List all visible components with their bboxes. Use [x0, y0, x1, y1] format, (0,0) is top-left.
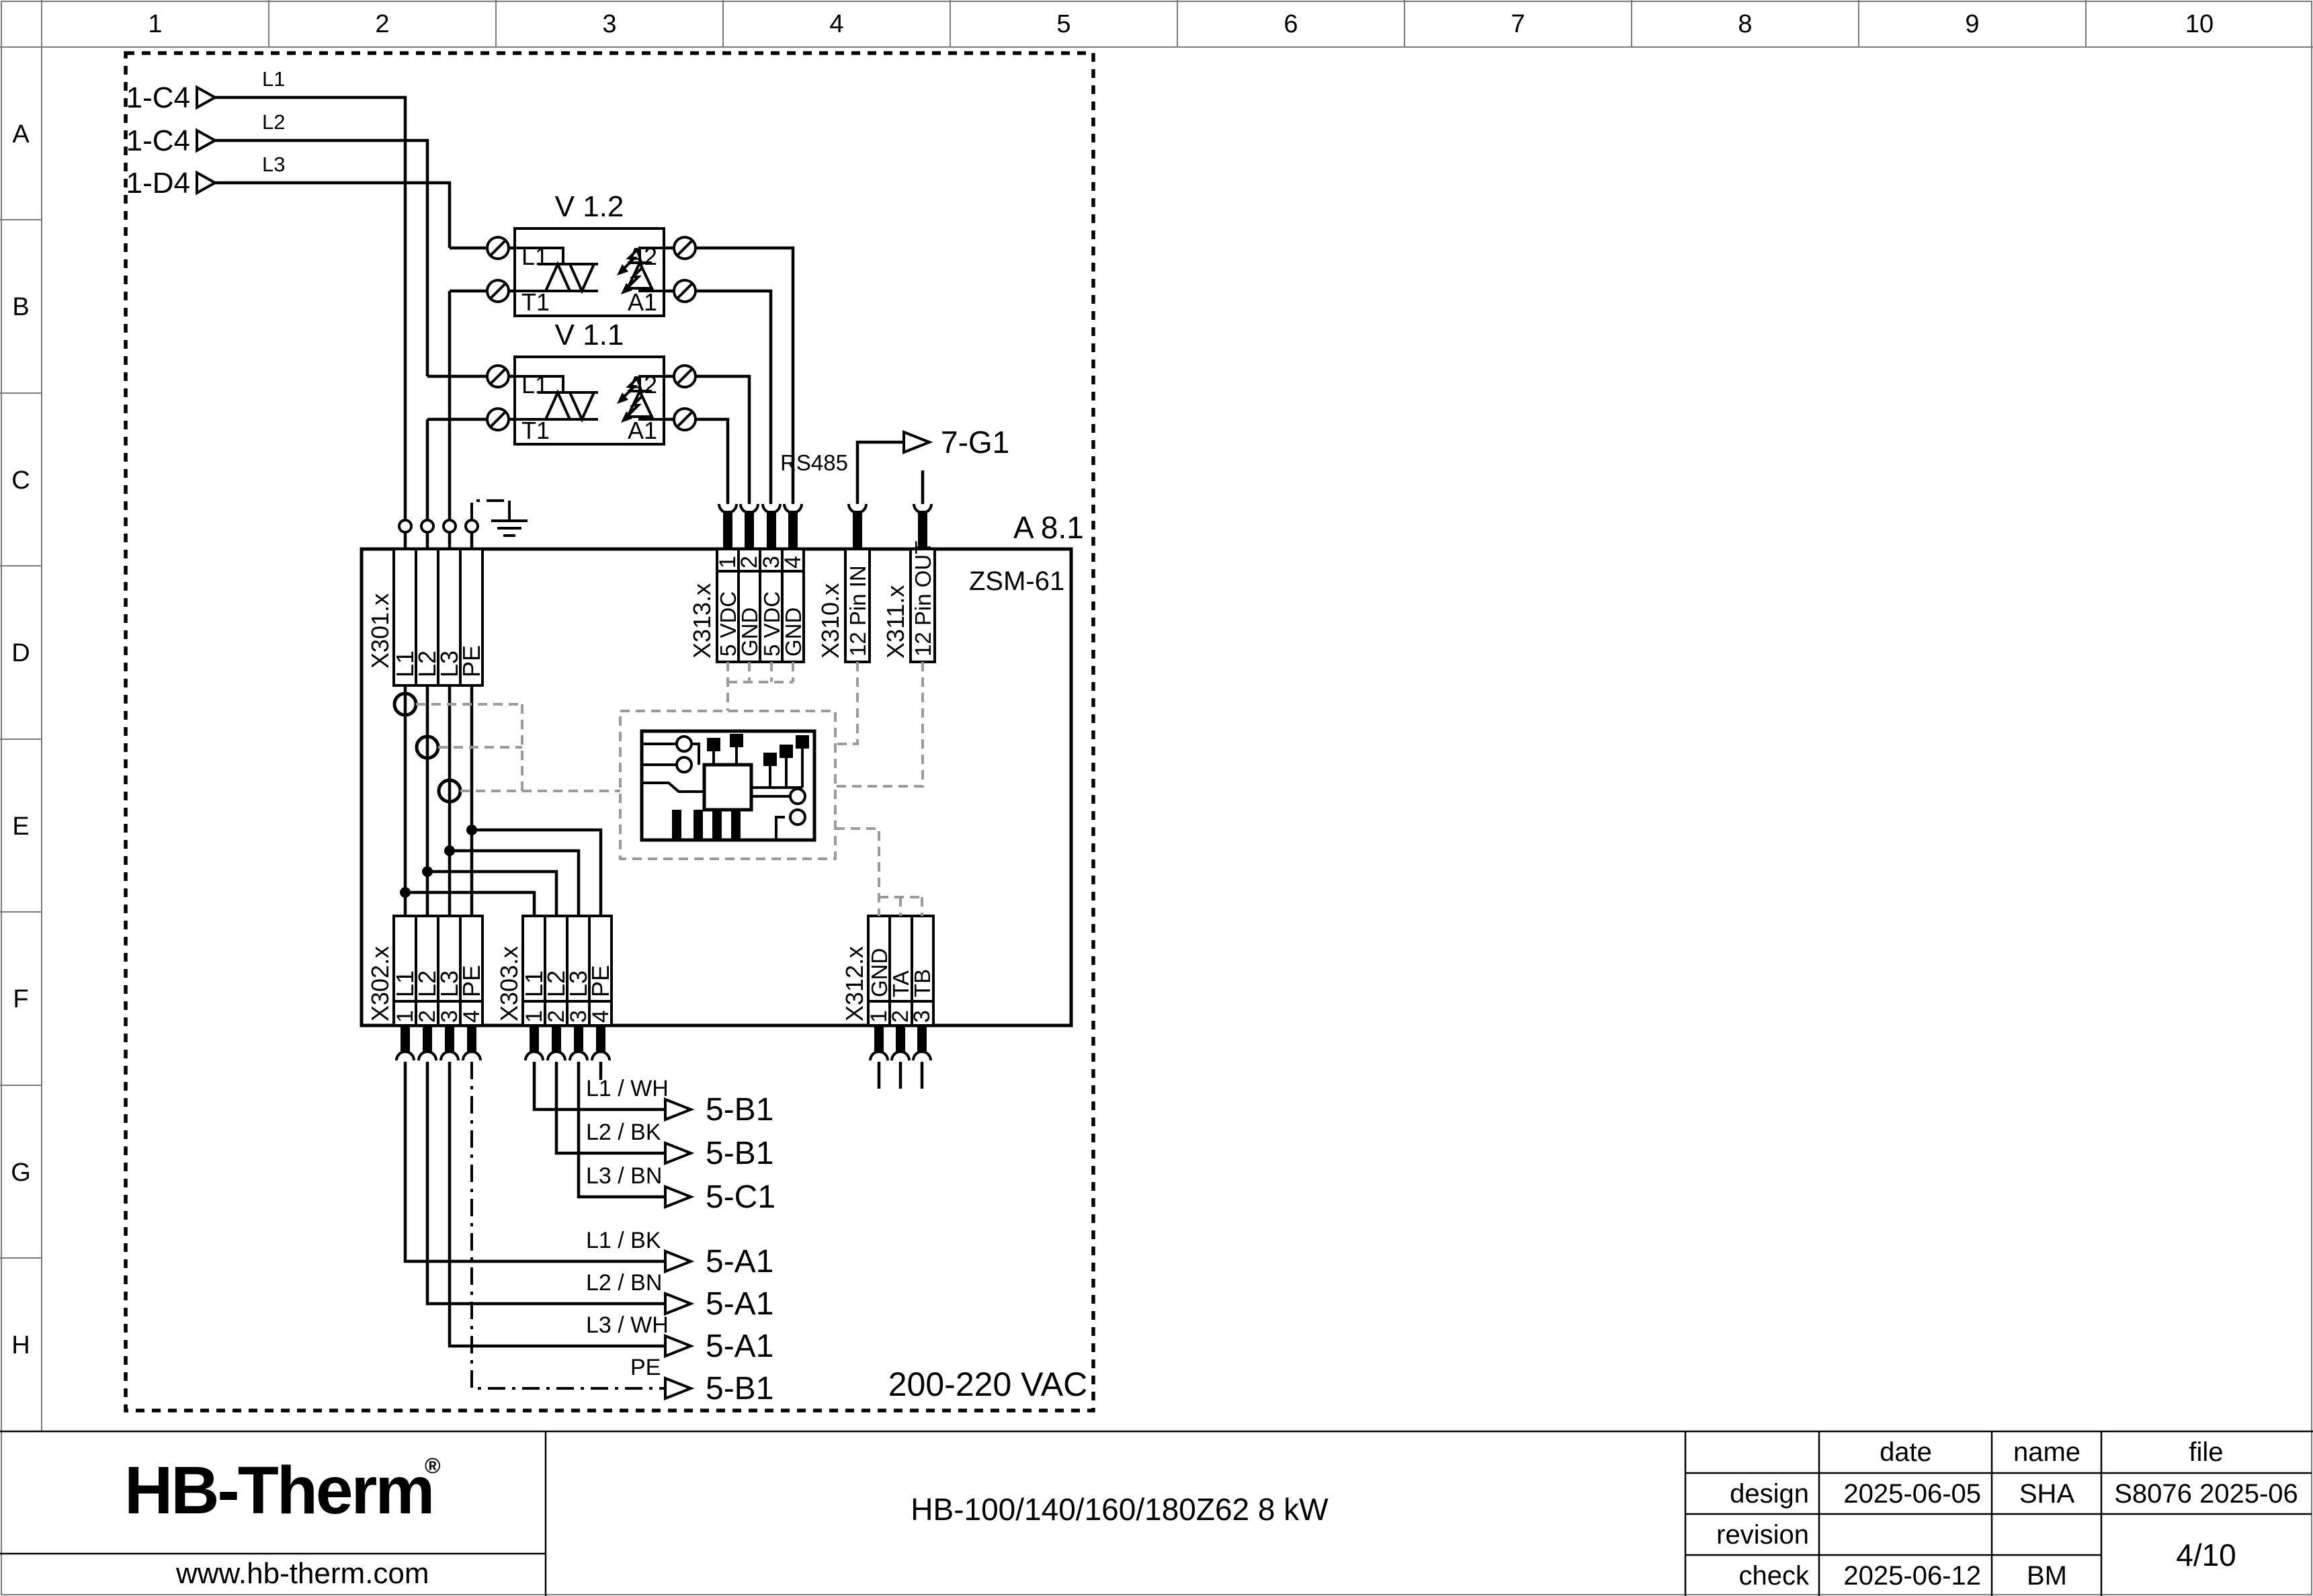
grid-row-label: D [11, 639, 30, 667]
col-header-file: file [2189, 1437, 2223, 1467]
wire-label: L2 / BN [586, 1270, 662, 1296]
junction-dot [466, 825, 477, 835]
grid-col-label: 7 [1511, 10, 1525, 38]
module-type: ZSM-61 [969, 566, 1064, 596]
dest-arrow-icon [665, 1294, 691, 1314]
check-name: BM [2027, 1561, 2067, 1591]
doc-title: HB-100/140/160/180Z62 8 kW [911, 1492, 1329, 1527]
terminal-label: T1 [521, 417, 550, 444]
dest-ref: 5-A1 [706, 1329, 773, 1364]
grid-row-label: E [12, 812, 29, 841]
grid-row-label: B [12, 293, 29, 321]
grid-col-label: 5 [1056, 10, 1070, 38]
signal-label: TB [910, 969, 935, 997]
junction-dot [422, 866, 433, 877]
title-block: HB-Therm ® www.hb-therm.com HB-100/140/1… [0, 1431, 2313, 1596]
block-label: X313.x [688, 583, 716, 659]
junction-dot [444, 845, 455, 856]
earth-ground [472, 501, 528, 536]
block-label: X310.x [816, 583, 844, 659]
rs485-link: 7-G1 RS485 [780, 425, 1009, 504]
output-wires: L1 / WH L2 / BK L3 / BN L1 / BK L2 / BN … [405, 1062, 922, 1406]
internal-dashed-links [416, 662, 923, 916]
source-references: 1-C4 1-C4 1-D4 L1 L2 L3 [126, 67, 286, 200]
grid-ruler: 1 2 3 4 5 6 7 8 9 10 A B C D E F G H [0, 0, 2313, 1595]
page-number: 4/10 [2176, 1538, 2236, 1572]
socket-circle-icon [399, 520, 478, 549]
website-link[interactable]: www.hb-therm.com [175, 1557, 429, 1590]
dest-ref: 5-B1 [706, 1092, 773, 1128]
dest-ref: 5-A1 [706, 1286, 773, 1322]
phase-wires [215, 97, 601, 916]
dest-arrow-icon [665, 1187, 691, 1207]
wire-label: L3 / WH [586, 1312, 669, 1338]
signal-label: GND [737, 607, 762, 657]
grid-col-label: 10 [2185, 10, 2214, 38]
pin-number: 4 [780, 556, 806, 569]
plug-connector-icon [396, 1025, 931, 1060]
grid-col-label: 1 [148, 10, 162, 38]
dest-arrow-icon [665, 1251, 691, 1271]
company-logo: HB-Therm [124, 1453, 433, 1528]
source-arrow-icon [197, 87, 215, 108]
signal-label: 12 Pin IN [845, 565, 870, 657]
pcb-icon [620, 711, 835, 859]
source-arrow-icon [197, 130, 215, 151]
signal-label: PE [458, 965, 485, 997]
check-date: 2025-06-12 [1843, 1561, 1981, 1591]
ssr-name: V 1.2 [555, 190, 624, 223]
signal-label: GND [781, 607, 806, 657]
wire-label: L2 / BK [586, 1120, 661, 1145]
file-ref: S8076 2025-06 [2114, 1479, 2298, 1509]
terminal-block-x311: X311.x 12 Pin OUT [882, 541, 935, 662]
grid-col-label: 9 [1965, 10, 1979, 38]
module-a8-1: A 8.1 ZSM-61 X301.x L1 L2 L3 [362, 504, 1084, 1060]
pin-number: 3 [909, 1010, 935, 1023]
block-label: X303.x [495, 946, 523, 1021]
grid-col-label: 4 [829, 10, 843, 38]
col-header-name: name [2013, 1437, 2080, 1467]
col-header-date: date [1880, 1437, 1932, 1467]
junction-dot [400, 887, 411, 898]
dest-arrow-icon [904, 432, 929, 452]
terminal-label: A1 [628, 288, 657, 316]
dest-ref: 7-G1 [941, 425, 1009, 460]
schematic-sheet: 1 2 3 4 5 6 7 8 9 10 A B C D E F G H 1-C… [0, 0, 2313, 1596]
terminal-label: A1 [628, 417, 657, 444]
terminal-label: T1 [521, 288, 550, 316]
row-label-revision: revision [1716, 1520, 1809, 1550]
phase-label: L1 [262, 67, 285, 91]
dest-ref: 5-C1 [706, 1179, 775, 1215]
grid-row-label: C [11, 466, 30, 495]
grid-row-label: H [11, 1331, 30, 1359]
cell-label: PE [458, 645, 485, 677]
pin-number: 4 [588, 1010, 614, 1023]
design-date: 2025-06-05 [1843, 1479, 1981, 1509]
row-label-design: design [1730, 1479, 1809, 1509]
wire-label: PE [630, 1355, 661, 1380]
grid-row-label: A [12, 120, 30, 149]
source-ref: 1-C4 [126, 81, 190, 114]
grid-col-label: 8 [1738, 10, 1752, 38]
phase-label: L3 [262, 153, 285, 176]
terminal-block-x313: X313.x 1 2 3 4 5 VDC GND 5 VDC GND [688, 549, 806, 662]
terminal-block-x301: X301.x L1 L2 L3 PE [366, 549, 485, 685]
source-ref: 1-C4 [126, 124, 190, 157]
wire-label: L3 / BN [586, 1163, 662, 1189]
grid-row-label: G [11, 1159, 31, 1187]
block-label: X311.x [882, 585, 909, 659]
registered-mark-icon: ® [425, 1454, 441, 1478]
signal-label: 12 Pin OUT [911, 541, 935, 657]
dest-arrow-icon [665, 1099, 691, 1120]
plug-connector-icon [719, 504, 931, 549]
terminal-block-x312: X312.x GND TA TB 1 2 3 [841, 916, 935, 1025]
block-label: X302.x [366, 946, 394, 1021]
phase-label: L2 [262, 110, 285, 134]
pin-number: 4 [459, 1010, 485, 1023]
grid-row-label: F [13, 985, 28, 1013]
wire-label: L1 / BK [586, 1228, 661, 1253]
dest-ref: 5-A1 [706, 1244, 773, 1279]
block-label: X301.x [366, 593, 394, 669]
block-label: X312.x [841, 946, 868, 1021]
sheet-border [1, 1, 2312, 1595]
terminal-block-x302: X302.x L1 L2 L3 PE 1 2 3 4 [366, 916, 485, 1025]
dest-arrow-icon [665, 1378, 691, 1398]
terminal-block-x303: X303.x L1 L2 L3 PE 1 2 3 4 [495, 916, 614, 1025]
dest-arrow-icon [665, 1336, 691, 1356]
grid-col-label: 3 [602, 10, 616, 38]
ssr-v1-1: V 1.1 L1 A2 T1 A1 [427, 319, 749, 504]
terminal-block-x310: X310.x 12 Pin IN [816, 549, 870, 662]
design-name: SHA [2019, 1479, 2075, 1509]
source-arrow-icon [197, 173, 215, 193]
power-note: 200-220 VAC [888, 1366, 1087, 1403]
dest-arrow-icon [665, 1143, 691, 1163]
row-label-check: check [1739, 1561, 1810, 1591]
dest-ref: 5-B1 [706, 1371, 773, 1406]
grid-col-label: 6 [1284, 10, 1298, 38]
ssr-name: V 1.1 [555, 319, 624, 351]
signal-label: PE [587, 965, 614, 997]
grid-col-label: 2 [375, 10, 389, 38]
module-ref: A 8.1 [1013, 510, 1084, 545]
wire-label: L1 / WH [586, 1076, 669, 1101]
source-ref: 1-D4 [126, 167, 190, 200]
bus-label: RS485 [780, 450, 848, 475]
dest-ref: 5-B1 [706, 1136, 773, 1171]
